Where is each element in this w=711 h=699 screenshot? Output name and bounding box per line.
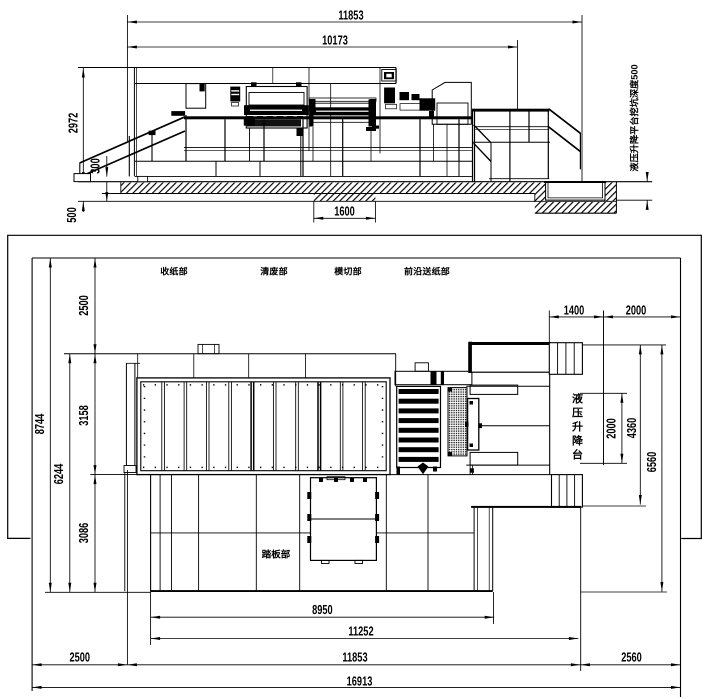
svg-text:液: 液 <box>572 393 584 406</box>
svg-text:2000: 2000 <box>626 303 647 318</box>
svg-text:收纸部: 收纸部 <box>160 267 188 277</box>
svg-text:3158: 3158 <box>76 405 91 426</box>
svg-text:3086: 3086 <box>76 523 91 544</box>
svg-text:清废部: 清废部 <box>260 267 288 277</box>
svg-text:16913: 16913 <box>347 673 373 688</box>
svg-text:2000: 2000 <box>604 418 619 439</box>
svg-text:8950: 8950 <box>312 602 333 617</box>
svg-text:6244: 6244 <box>51 463 66 484</box>
svg-text:升: 升 <box>572 421 583 434</box>
svg-text:台: 台 <box>572 449 583 462</box>
svg-text:11252: 11252 <box>348 624 373 639</box>
svg-text:踏板部: 踏板部 <box>262 549 291 561</box>
svg-text:前沿送纸部: 前沿送纸部 <box>404 267 450 277</box>
svg-text:500: 500 <box>64 207 79 222</box>
svg-text:液压升降平台挖坑深度500: 液压升降平台挖坑深度500 <box>629 64 640 171</box>
svg-text:8744: 8744 <box>32 413 47 434</box>
svg-text:降: 降 <box>572 435 584 448</box>
svg-text:2500: 2500 <box>76 295 91 316</box>
svg-text:压: 压 <box>572 408 583 420</box>
svg-text:4360: 4360 <box>624 418 639 439</box>
svg-text:2972: 2972 <box>66 113 81 134</box>
svg-text:6560: 6560 <box>644 452 659 473</box>
svg-text:10173: 10173 <box>322 32 348 47</box>
svg-text:1400: 1400 <box>564 303 585 318</box>
svg-text:2500: 2500 <box>69 649 90 664</box>
svg-text:11853: 11853 <box>342 649 367 664</box>
svg-text:模切部: 模切部 <box>334 267 362 277</box>
svg-text:300: 300 <box>88 158 103 173</box>
svg-text:1600: 1600 <box>334 203 355 218</box>
svg-text:11853: 11853 <box>338 8 363 23</box>
svg-text:2560: 2560 <box>621 649 642 664</box>
